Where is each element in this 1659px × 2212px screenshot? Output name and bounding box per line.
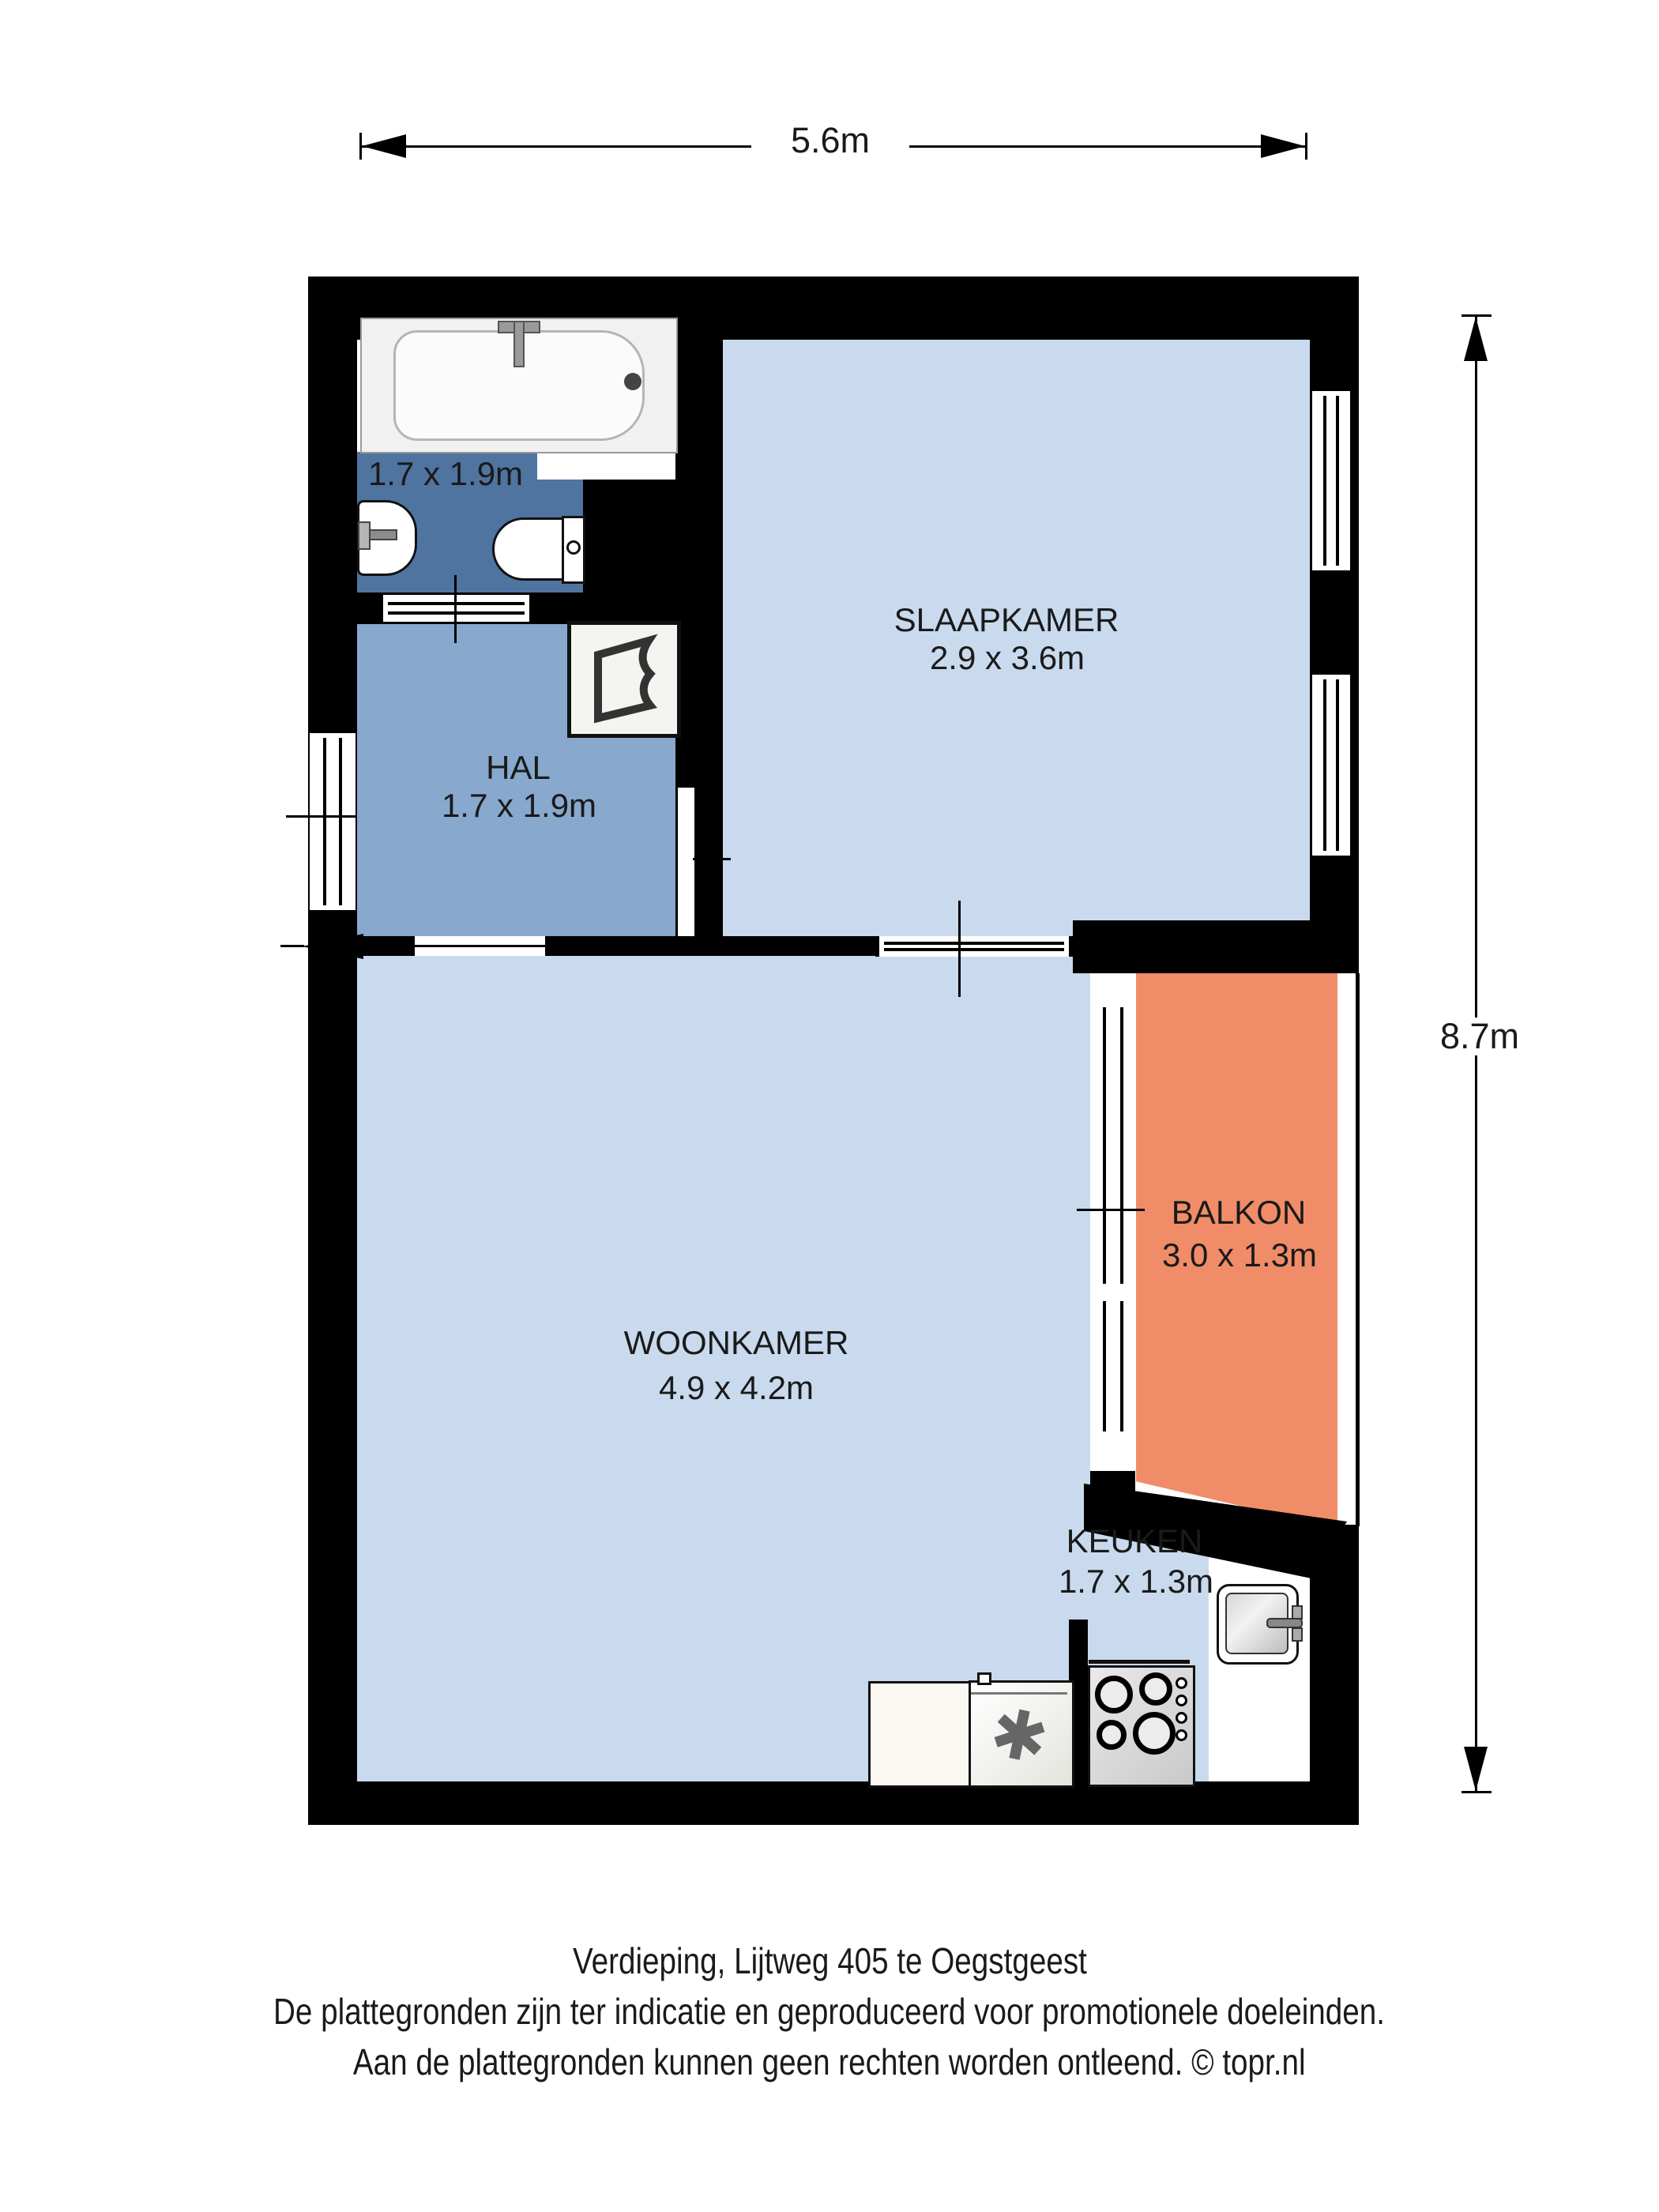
door-axis-tick	[454, 575, 457, 643]
keuken-dims: 1.7 x 1.3m	[978, 1563, 1294, 1601]
door-axis-tick	[958, 901, 961, 997]
entrance-axis-tick	[280, 945, 304, 947]
kitchen-faucet-icon	[1292, 1605, 1303, 1619]
balkon-name: BALKON	[1081, 1194, 1397, 1232]
wall-balkon-diagonal	[0, 0, 1659, 2212]
toilet-bowl	[492, 517, 565, 581]
badkamer-dims: 1.7 x 1.9m	[288, 455, 604, 493]
balkon-door-glass	[1103, 1301, 1123, 1431]
slaapkamer-sliding-door	[875, 936, 1073, 957]
sink-faucet-icon	[358, 521, 371, 550]
woonkamer-name: WOONKAMER	[578, 1324, 894, 1362]
hal-name: HAL	[360, 749, 676, 787]
kitchen-faucet-icon	[1292, 1627, 1303, 1642]
slaapkamer-window-1	[1312, 391, 1350, 570]
stove-knob-icon	[1176, 1712, 1187, 1724]
keuken-name: KEUKEN	[976, 1522, 1292, 1560]
stove-knob-icon	[1176, 1677, 1187, 1689]
wardrobe	[567, 621, 681, 738]
slaapkamer-window-2	[1312, 675, 1350, 856]
toilet	[492, 516, 585, 581]
stove-rail	[1089, 1660, 1190, 1664]
bathtub	[360, 318, 678, 453]
slaapkamer-name: SLAAPKAMER	[848, 601, 1164, 639]
slaapkamer-dims: 2.9 x 3.6m	[849, 639, 1165, 677]
footer-title: Verdieping, Lijtweg 405 te Oegstgeest	[0, 1935, 1659, 1986]
bathroom-sink	[357, 500, 417, 576]
fridge-freezer: ✱	[969, 1680, 1074, 1788]
footer-disclaimer-2: Aan de plattegronden kunnen geen rechten…	[0, 2037, 1659, 2087]
stove	[1088, 1665, 1195, 1787]
footer: Verdieping, Lijtweg 405 te Oegstgeest De…	[0, 1935, 1659, 2087]
bathtub-faucet-icon	[513, 321, 525, 367]
stove-knob-icon	[1176, 1729, 1187, 1741]
burner-icon	[1139, 1672, 1172, 1706]
burner-icon	[1095, 1676, 1133, 1714]
open-passage-line	[415, 945, 545, 947]
burner-icon	[1097, 1720, 1127, 1750]
bathtub-drain-icon	[624, 373, 641, 390]
floorplan-page: 5.6m 8.7m	[0, 0, 1659, 2212]
hal-dims: 1.7 x 1.9m	[361, 787, 677, 825]
entrance-arrow-icon	[302, 934, 363, 959]
kitchen-counter	[868, 1681, 973, 1788]
woonkamer-dims: 4.9 x 4.2m	[578, 1369, 894, 1407]
balkon-dims: 3.0 x 1.3m	[1082, 1236, 1398, 1274]
toilet-flush-button	[566, 540, 581, 555]
window-axis-tick	[286, 815, 355, 818]
footer-disclaimer-1: De plattegronden zijn ter indicatie en g…	[0, 1986, 1659, 2037]
freezer-star-icon: ✱	[964, 1687, 1074, 1785]
door-axis-tick	[693, 858, 731, 860]
wardrobe-icon	[571, 625, 677, 734]
stove-knob-icon	[1176, 1695, 1187, 1706]
burner-icon	[1133, 1712, 1176, 1755]
hal-window	[310, 733, 355, 910]
hal-slaapkamer-door	[676, 786, 696, 938]
fridge-knob	[977, 1672, 991, 1685]
